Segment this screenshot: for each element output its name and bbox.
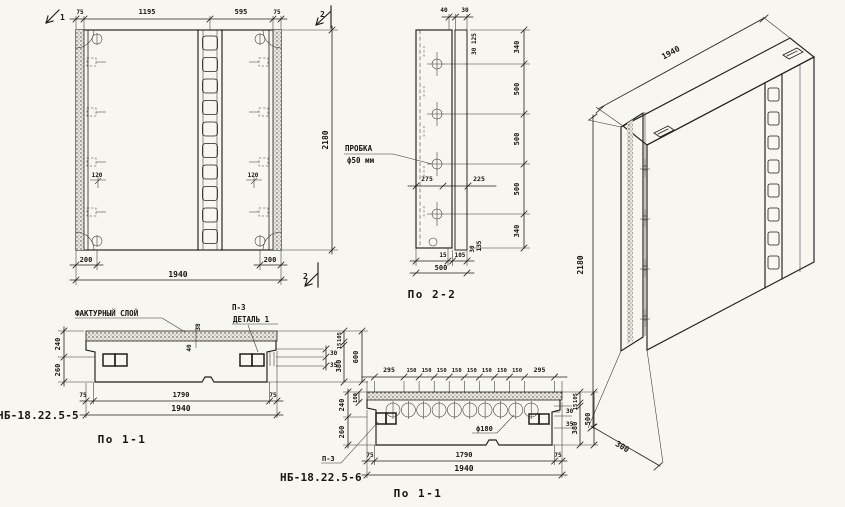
dim-label: 500 <box>513 83 521 96</box>
iso-depth-extension <box>647 350 663 463</box>
section-2-2-caption: По 2-2 <box>408 288 457 301</box>
dim-label: 75 <box>79 392 87 399</box>
section-mark-2-top: 2 <box>320 10 325 19</box>
dim-label: 340 <box>513 41 521 54</box>
dim-label: 150 <box>407 368 417 374</box>
embedded-channels <box>376 413 549 424</box>
dim-loop-left: 120 <box>92 172 103 179</box>
embedded-channels <box>103 354 264 366</box>
dim-label: 150 <box>452 368 462 374</box>
dim-label: 15 <box>439 252 447 259</box>
dim-label: 40 <box>440 7 448 14</box>
dim-loop-right: 120 <box>248 172 259 179</box>
bottom-small-dim-ticks <box>73 262 284 268</box>
dim-height-label: 2180 <box>321 130 330 149</box>
detail-label: ДЕТАЛЬ 1 <box>233 315 270 324</box>
section-caption: По 1-1 <box>394 487 443 500</box>
dim-label: 275 <box>421 175 433 183</box>
panel-mark: НБ-18.22.5-6 <box>280 471 362 484</box>
dim-label: 1195 <box>139 8 156 16</box>
dim-label: 15 <box>337 343 343 350</box>
dim-label: 30 <box>469 245 476 253</box>
dim-label: 340 <box>513 225 521 238</box>
section-caption: По 1-1 <box>98 433 147 446</box>
dim-label: 105 <box>337 332 343 342</box>
dim-total-label: 500 <box>435 264 448 272</box>
front-left-facing-strip <box>76 30 84 250</box>
iso-length-label: 1940 <box>660 44 681 61</box>
section-marks: 1 2 2 <box>46 6 331 287</box>
top-dim-extensions <box>76 16 281 30</box>
right-small-dim <box>323 346 329 370</box>
dim-label: 30 <box>330 350 338 357</box>
section-1-1-a: ФАКТУРНЫЙ СЛОЙ П-3 ДЕТАЛЬ 1 40 38 240 26… <box>0 303 368 446</box>
iso-main-face <box>647 57 814 350</box>
section-mark-1: 1 <box>60 13 65 22</box>
dim-label: 15 <box>573 404 579 411</box>
section-mark-2-bottom: 2 <box>303 272 308 281</box>
dim-total-label: 1940 <box>168 270 187 279</box>
dim-label: 75 <box>554 452 562 459</box>
facing-layer <box>86 331 277 341</box>
front-outline <box>76 30 281 250</box>
dim-label: 75 <box>366 452 374 459</box>
dim-label: 200 <box>80 256 93 264</box>
dim-label: 380 <box>335 360 343 373</box>
dim-label: 105 <box>455 252 466 259</box>
front-right-facing-strip <box>273 30 281 250</box>
dim-label: 240 <box>54 338 62 351</box>
iso-height-dim <box>589 114 597 430</box>
dim-total-label: 1940 <box>454 464 473 473</box>
dim-label: 260 <box>54 364 62 377</box>
dim-label: 38 <box>195 323 202 331</box>
front-view: 75 1195 595 75 1 2 2 2180 120 120 200 20… <box>46 6 338 287</box>
s22-top-extensions <box>449 14 467 30</box>
dim-total-label: 600 <box>352 351 360 364</box>
right-tab-lines <box>270 352 274 366</box>
dim-label: 500 <box>513 183 521 196</box>
rotated-note: 30 125 <box>471 33 478 55</box>
keyway-chain <box>203 36 218 244</box>
s22-right-dim-line <box>521 27 527 251</box>
isometric-view: 1940 2180 300 <box>576 15 814 470</box>
dim-label: 225 <box>473 175 485 183</box>
iso-length-dim <box>596 15 768 113</box>
dim-label: 1790 <box>173 391 190 399</box>
panel-working-drawing: 75 1195 595 75 1 2 2 2180 120 120 200 20… <box>0 0 845 507</box>
section-1-1-b: ф180 295 150 150 150 150 150 150 150 150… <box>280 366 598 500</box>
right-small-extensions <box>276 349 324 366</box>
section-2-2: ПРОБКА ф50 мм 40 30 30 125 340 500 500 5… <box>344 7 530 301</box>
dim-label: 30 <box>461 7 469 14</box>
dim-label: 75 <box>76 9 84 16</box>
top-dim-extensions <box>367 381 562 392</box>
dim-label: 40 <box>186 344 193 352</box>
dim-label: 595 <box>235 8 248 16</box>
edge-brackets <box>87 58 268 216</box>
section-arrow-1 <box>46 10 59 23</box>
dim-label: 380 <box>571 422 579 435</box>
dim-label: 150 <box>467 368 477 374</box>
corner-arcs <box>76 30 281 250</box>
s22-top-dim <box>442 14 473 20</box>
bottom-loop <box>429 238 437 246</box>
dim-label: 150 <box>422 368 432 374</box>
iso-height-label: 2180 <box>576 255 585 274</box>
dim-label: 135 <box>476 240 483 251</box>
facing-layer-label: ФАКТУРНЫЙ СЛОЙ <box>75 309 139 318</box>
plug-label-line2: ф50 мм <box>347 156 375 165</box>
iso-keyway-chain <box>768 88 779 269</box>
dim-label: 150 <box>482 368 492 374</box>
keyway-channel-inner <box>203 30 217 250</box>
front-edge-lines <box>84 30 273 250</box>
dim-label: 75 <box>273 9 281 16</box>
iso-facing-layer-edge <box>627 120 633 346</box>
dim-label: 240 <box>338 399 346 412</box>
iso-depth-label: 300 <box>614 439 631 454</box>
keyway-channel-lines <box>198 30 222 250</box>
iso-length-extensions <box>596 17 790 126</box>
facing-layer-leader <box>75 318 185 332</box>
dim-label: 75 <box>269 392 277 399</box>
drawing-sheet: 75 1195 595 75 1 2 2 2180 120 120 200 20… <box>0 0 845 507</box>
dim-label: 260 <box>338 426 346 439</box>
dim-label: 200 <box>264 256 277 264</box>
section-body <box>416 30 452 248</box>
dim-label: 150 <box>437 368 447 374</box>
round-voids <box>386 401 538 419</box>
dim-label: 500 <box>513 133 521 146</box>
panel-mark: НБ-18.22.5-5 <box>0 409 79 422</box>
void-dia-label: ф180 <box>476 425 493 433</box>
iso-lifting-holes <box>654 48 803 137</box>
plug-label-line1: ПРОБКА <box>345 144 373 153</box>
dim-total-label: 500 <box>584 413 592 426</box>
dim-total-label: 1940 <box>171 404 190 413</box>
dim-label: 1790 <box>456 451 473 459</box>
p3-label: П-3 <box>232 303 246 312</box>
dim-label: 100 <box>353 393 359 403</box>
dim-label: 295 <box>383 366 395 374</box>
dim-label: 295 <box>534 366 546 374</box>
p3-label: П-3 <box>322 455 335 463</box>
dim-label: 150 <box>512 368 522 374</box>
dim-label: 105 <box>573 393 579 403</box>
top-dim-line <box>362 374 567 380</box>
facing-layer-strip <box>455 30 467 250</box>
plug-holes <box>427 52 447 226</box>
facing-layer <box>367 392 562 400</box>
corner-loop-anchors <box>92 33 265 247</box>
facing-layer-outline <box>455 30 467 250</box>
dim-label: 150 <box>497 368 507 374</box>
